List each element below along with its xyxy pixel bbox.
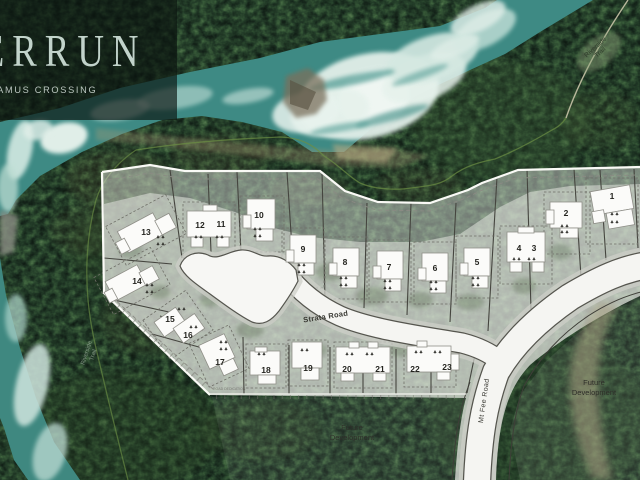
- svg-text:20: 20: [342, 364, 352, 374]
- svg-text:RIVERRUN: RIVERRUN: [0, 26, 146, 77]
- svg-text:2: 2: [564, 208, 569, 218]
- svg-text:16: 16: [183, 330, 193, 340]
- svg-text:CHEAKAMUS CROSSING: CHEAKAMUS CROSSING: [0, 85, 97, 95]
- svg-text:17: 17: [215, 357, 225, 367]
- svg-text:Future: Future: [341, 423, 363, 432]
- svg-text:15: 15: [165, 314, 175, 324]
- svg-text:5: 5: [475, 257, 480, 267]
- svg-text:14: 14: [132, 276, 142, 286]
- svg-text:6: 6: [433, 263, 438, 273]
- svg-text:11: 11: [217, 219, 226, 229]
- svg-text:Development: Development: [572, 388, 617, 397]
- svg-text:12: 12: [195, 220, 205, 230]
- svg-text:Future: Future: [583, 378, 605, 387]
- svg-text:8: 8: [343, 257, 348, 267]
- svg-text:13: 13: [141, 227, 151, 237]
- svg-text:21: 21: [375, 364, 385, 374]
- svg-text:1: 1: [610, 191, 615, 201]
- svg-text:3: 3: [532, 243, 537, 253]
- svg-text:19: 19: [303, 363, 313, 373]
- svg-text:ROAD DEDICATION: ROAD DEDICATION: [213, 387, 246, 391]
- svg-text:4: 4: [517, 243, 522, 253]
- svg-text:18: 18: [261, 365, 271, 375]
- svg-text:10: 10: [254, 210, 264, 220]
- svg-text:22: 22: [410, 364, 420, 374]
- svg-text:Development: Development: [330, 433, 375, 442]
- svg-text:9: 9: [301, 244, 306, 254]
- svg-text:23: 23: [442, 362, 452, 372]
- svg-text:7: 7: [387, 262, 392, 272]
